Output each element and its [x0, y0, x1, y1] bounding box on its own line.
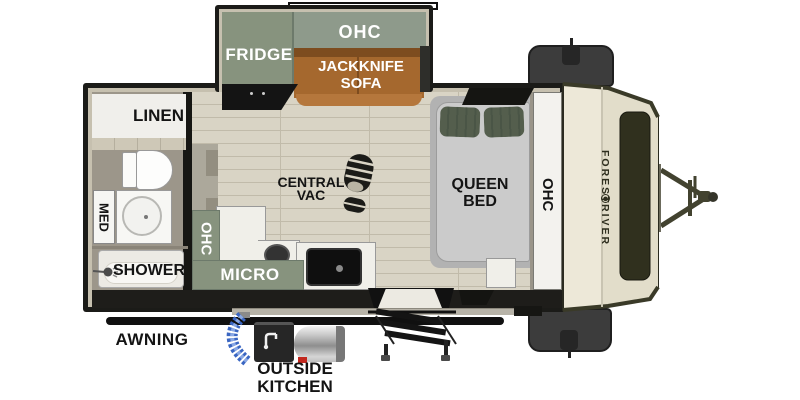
kitchen-sink [306, 248, 362, 286]
linen-label: LINEN [112, 106, 184, 126]
bathroom-sink [122, 196, 162, 236]
fridge-label: FRIDGE [222, 44, 296, 66]
ohc-kitchen-label: OHC [192, 214, 220, 264]
storage-box-stem [570, 38, 573, 46]
storage-box-latch [560, 330, 578, 350]
counter-handle-dot [262, 92, 265, 95]
outdoor-faucet-icon [260, 328, 284, 352]
toilet-tank [122, 152, 137, 188]
jackknife-sofa-label: JACKKNIFE SOFA [298, 58, 424, 96]
stabilizer-jack [514, 306, 542, 316]
med-label: MED [93, 190, 115, 244]
storage-box-latch [562, 45, 580, 65]
front-cap-and-hitch [558, 78, 720, 318]
floorplan-canvas: FRIDGE OHC JACKKNIFE SOFA LINEN MED SHOW… [0, 0, 800, 400]
boot-print-icon [336, 152, 378, 216]
hitch-icon [655, 164, 718, 232]
bedroom-window [462, 88, 534, 105]
shower-label: SHOWER [112, 262, 186, 280]
entry-steps-icon [366, 306, 462, 362]
tank-end-cap [336, 326, 345, 362]
wardrobe-shelf-shadow [206, 150, 218, 176]
storage-box-stem [568, 350, 571, 358]
sofa-back-band [294, 48, 424, 57]
forest-river-logo-icon [601, 194, 610, 203]
counter-handle-dot [250, 92, 253, 95]
queen-bed-label: QUEEN BED [440, 176, 520, 216]
linen-shelf [92, 138, 186, 150]
ohc-top-label: OHC [300, 21, 420, 43]
nightstand [486, 258, 516, 288]
kitchen-sink-drain [336, 265, 343, 272]
pillow [483, 106, 524, 137]
pillow [439, 106, 480, 137]
bath-divider [92, 246, 188, 249]
micro-label: MICRO [200, 264, 300, 286]
brand-label: FOREST RIVER [596, 108, 614, 288]
sink-drain [144, 215, 148, 219]
outside-kitchen-label: OUTSIDE KITCHEN [240, 360, 350, 398]
awning-label: AWNING [106, 330, 198, 350]
